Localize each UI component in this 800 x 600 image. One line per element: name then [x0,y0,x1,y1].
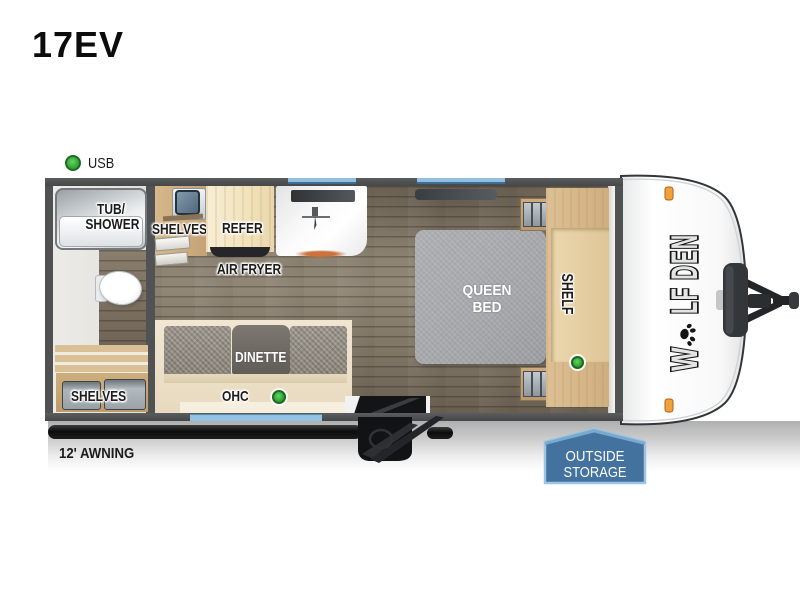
svg-text:OUTSIDE: OUTSIDE [566,448,625,465]
svg-text:STORAGE: STORAGE [564,464,627,481]
svg-text:W: W [663,347,705,371]
